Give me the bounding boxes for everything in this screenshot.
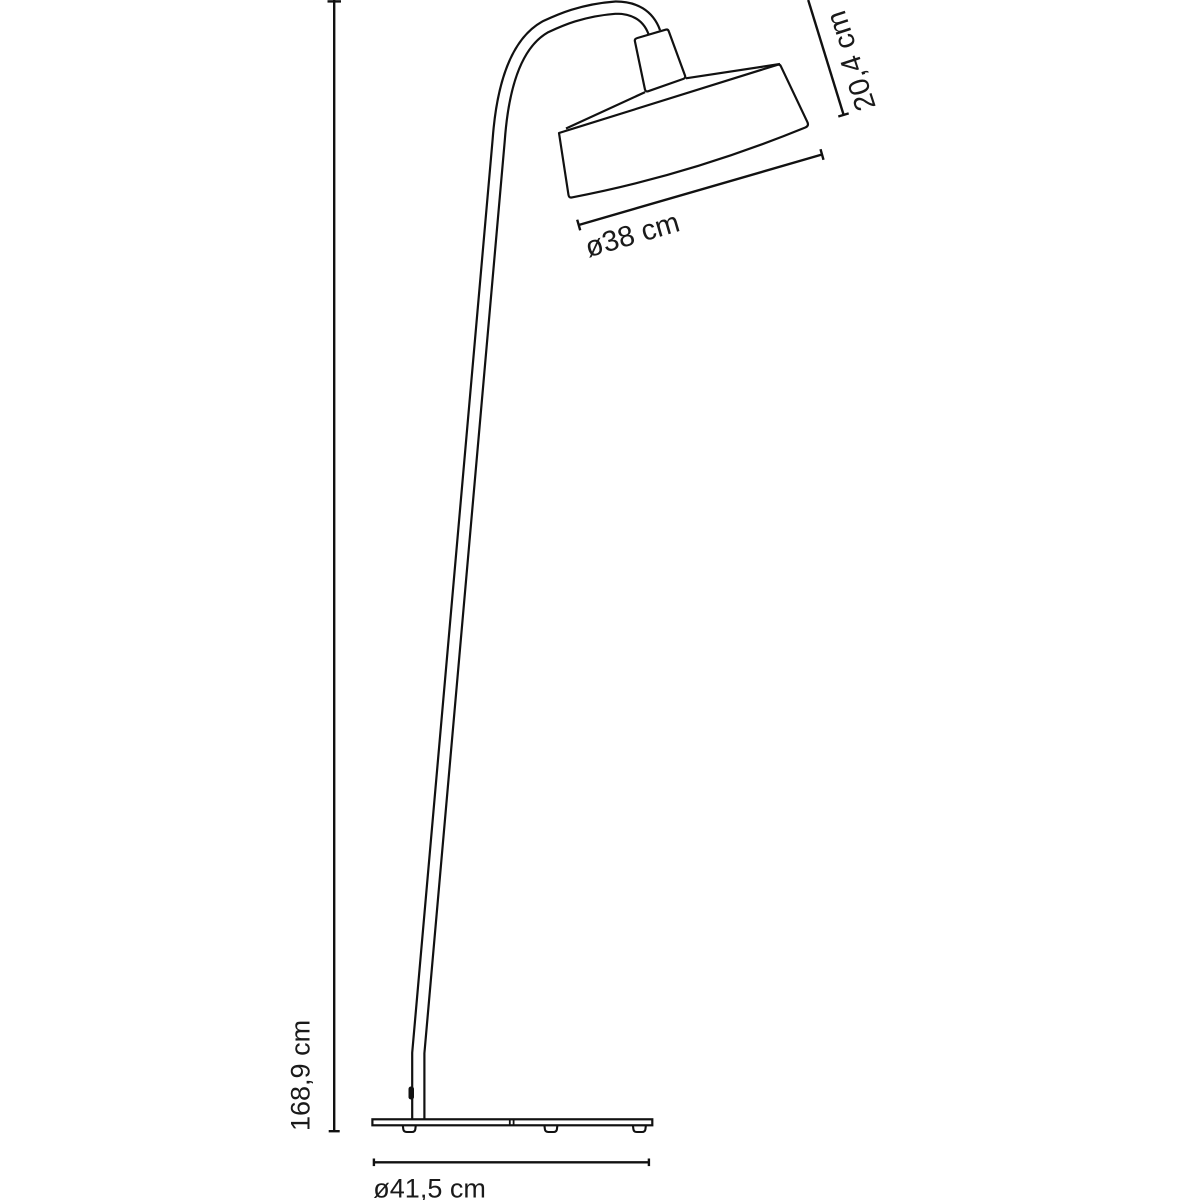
svg-text:ø41,5 cm: ø41,5 cm: [373, 1174, 486, 1200]
svg-text:168,9 cm: 168,9 cm: [286, 1020, 316, 1131]
